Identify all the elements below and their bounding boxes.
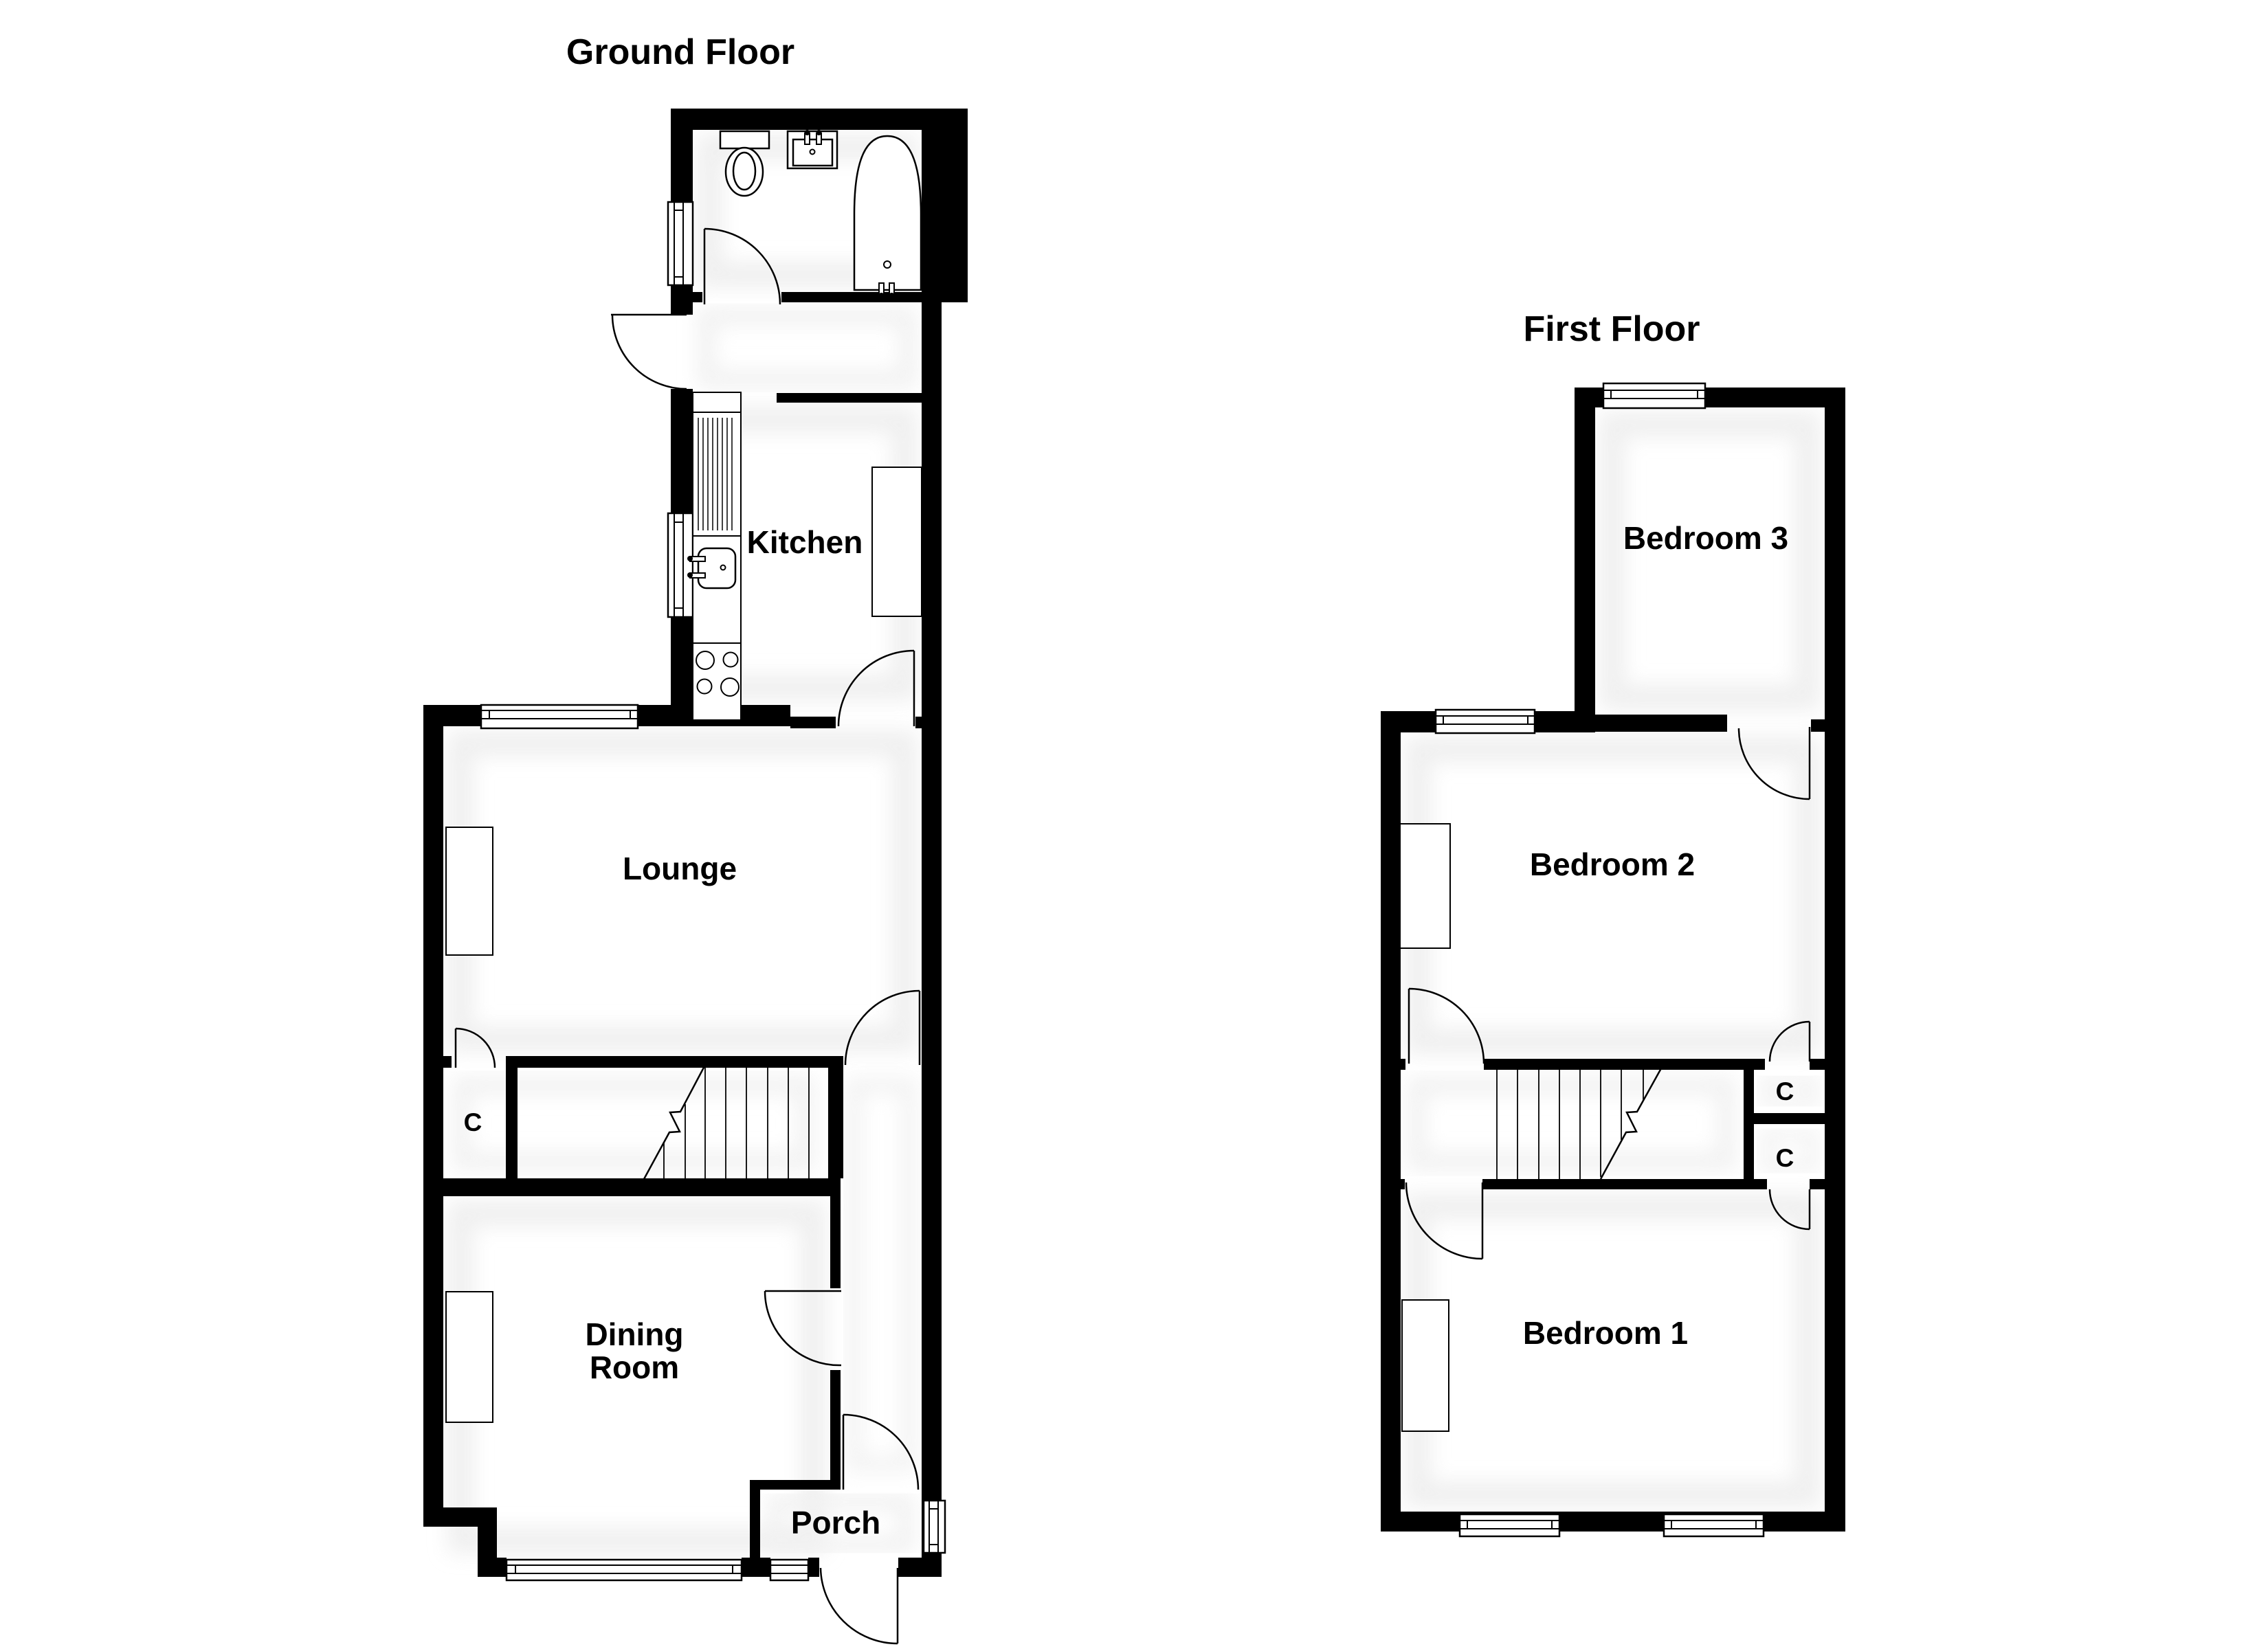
svg-text:Dining: Dining — [585, 1316, 683, 1352]
svg-text:Kitchen: Kitchen — [747, 524, 863, 560]
svg-text:C: C — [464, 1108, 482, 1136]
svg-text:Bedroom 2: Bedroom 2 — [1530, 846, 1695, 882]
svg-text:C: C — [1776, 1077, 1794, 1106]
svg-text:Porch: Porch — [791, 1505, 880, 1540]
svg-text:Room: Room — [590, 1349, 679, 1385]
svg-text:Bedroom 3: Bedroom 3 — [1623, 520, 1788, 556]
svg-text:Ground Floor: Ground Floor — [566, 32, 794, 72]
svg-text:First Floor: First Floor — [1523, 309, 1700, 349]
svg-text:C: C — [1776, 1144, 1794, 1172]
svg-text:Bedroom 1: Bedroom 1 — [1523, 1315, 1688, 1351]
svg-text:Lounge: Lounge — [623, 851, 737, 886]
